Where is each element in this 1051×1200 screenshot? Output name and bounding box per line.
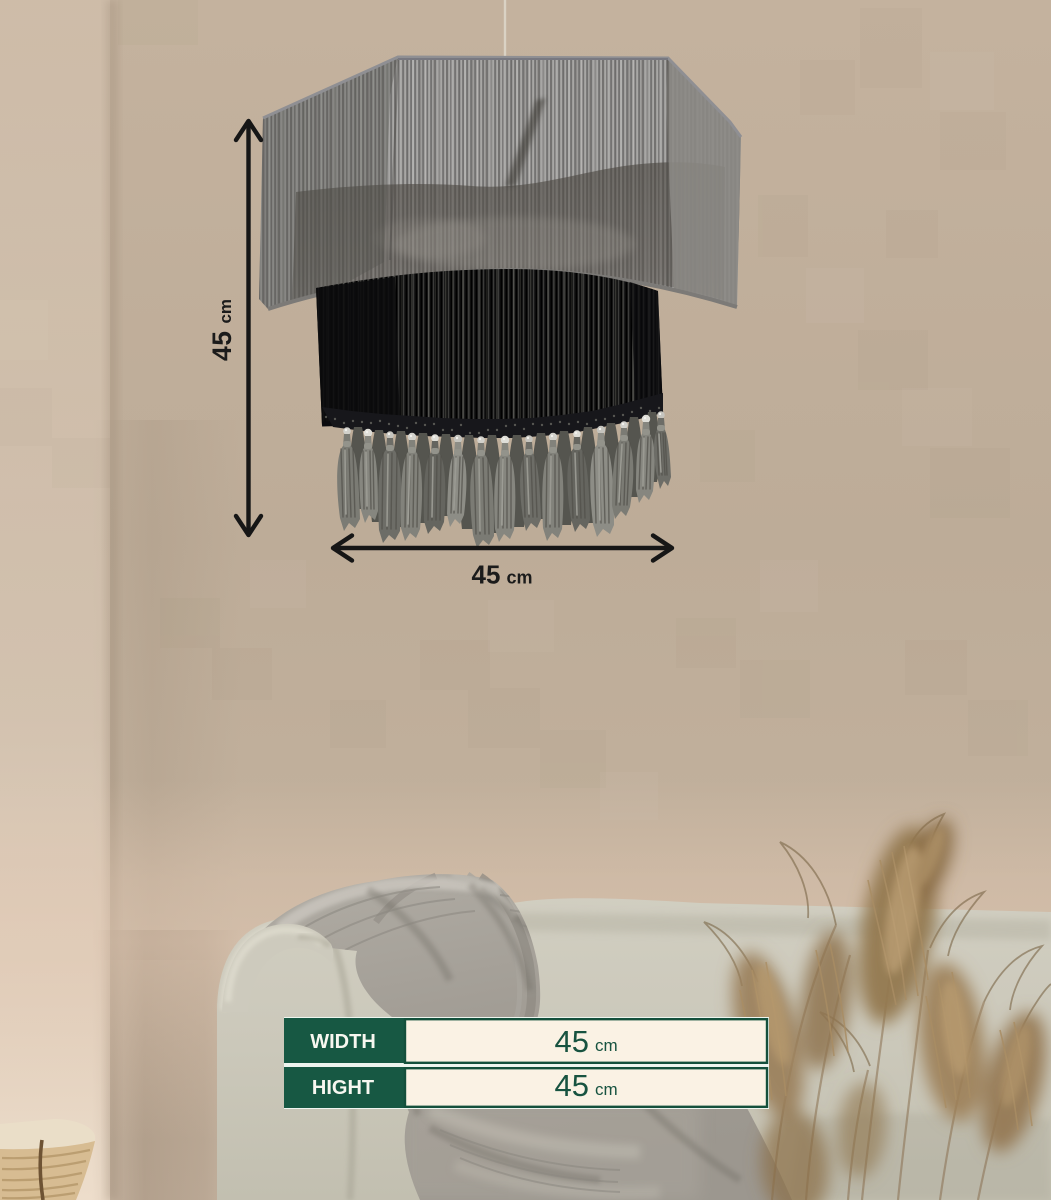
svg-text:WIDTH: WIDTH [310, 1031, 376, 1053]
svg-text:45: 45 [555, 1024, 589, 1059]
svg-text:cm: cm [595, 1036, 618, 1055]
svg-text:HIGHT: HIGHT [312, 1077, 374, 1099]
svg-text:cm: cm [595, 1080, 618, 1099]
svg-text:45: 45 [555, 1068, 589, 1103]
